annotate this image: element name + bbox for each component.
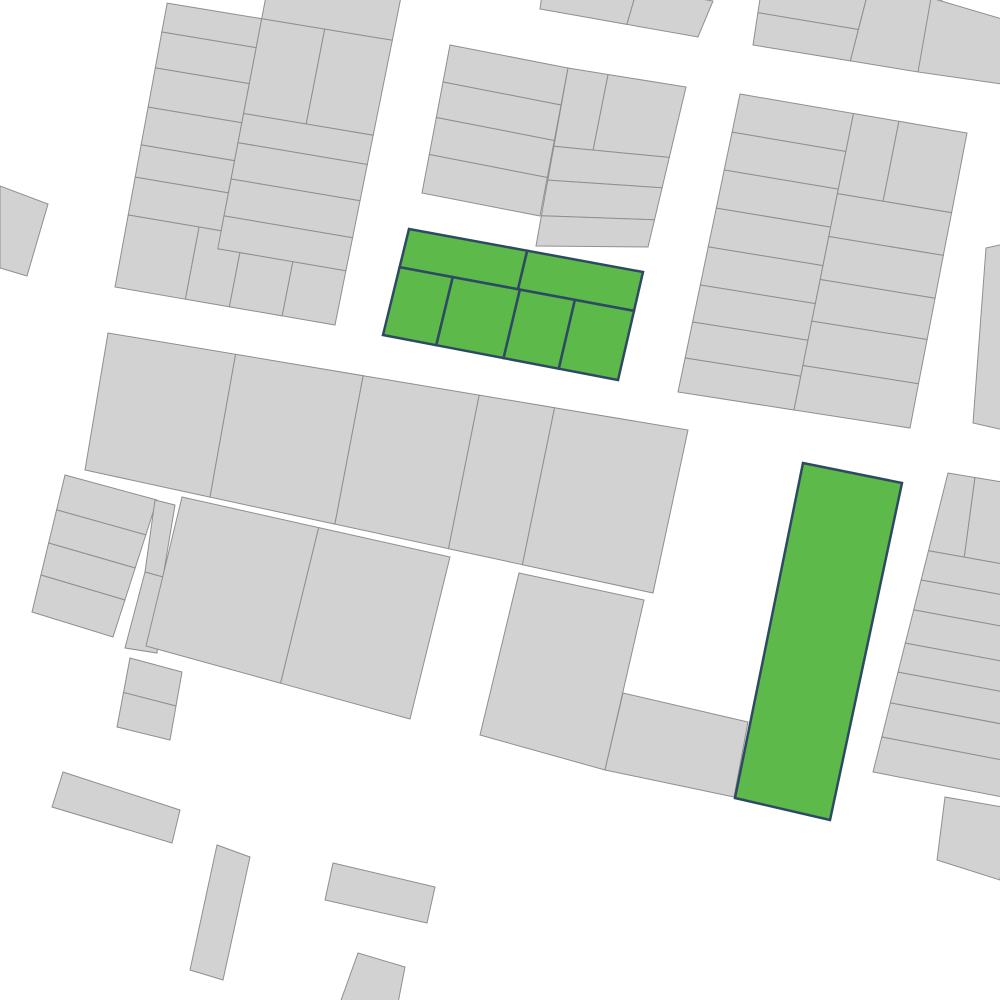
- parcel[interactable]: [282, 262, 346, 325]
- parcel[interactable]: [540, 0, 637, 24]
- parcel[interactable]: [536, 216, 655, 247]
- parcel[interactable]: [918, 0, 1000, 84]
- parcel[interactable]: [229, 253, 293, 316]
- parcel[interactable]: [85, 333, 236, 497]
- parcel[interactable]: [0, 186, 48, 276]
- map-canvas[interactable]: [0, 0, 1000, 1000]
- parcel[interactable]: [605, 693, 748, 797]
- parcel[interactable]: [340, 953, 405, 1000]
- map-viewport: [0, 0, 1000, 1000]
- parcel[interactable]: [325, 863, 435, 923]
- parcel[interactable]: [937, 797, 1000, 880]
- parcel[interactable]: [973, 244, 1000, 430]
- parcel[interactable]: [52, 772, 180, 843]
- parcel[interactable]: [627, 0, 713, 37]
- parcel[interactable]: [593, 75, 686, 158]
- parcel[interactable]: [883, 121, 967, 212]
- parcel[interactable]: [190, 845, 250, 980]
- parcel[interactable]: [115, 215, 199, 299]
